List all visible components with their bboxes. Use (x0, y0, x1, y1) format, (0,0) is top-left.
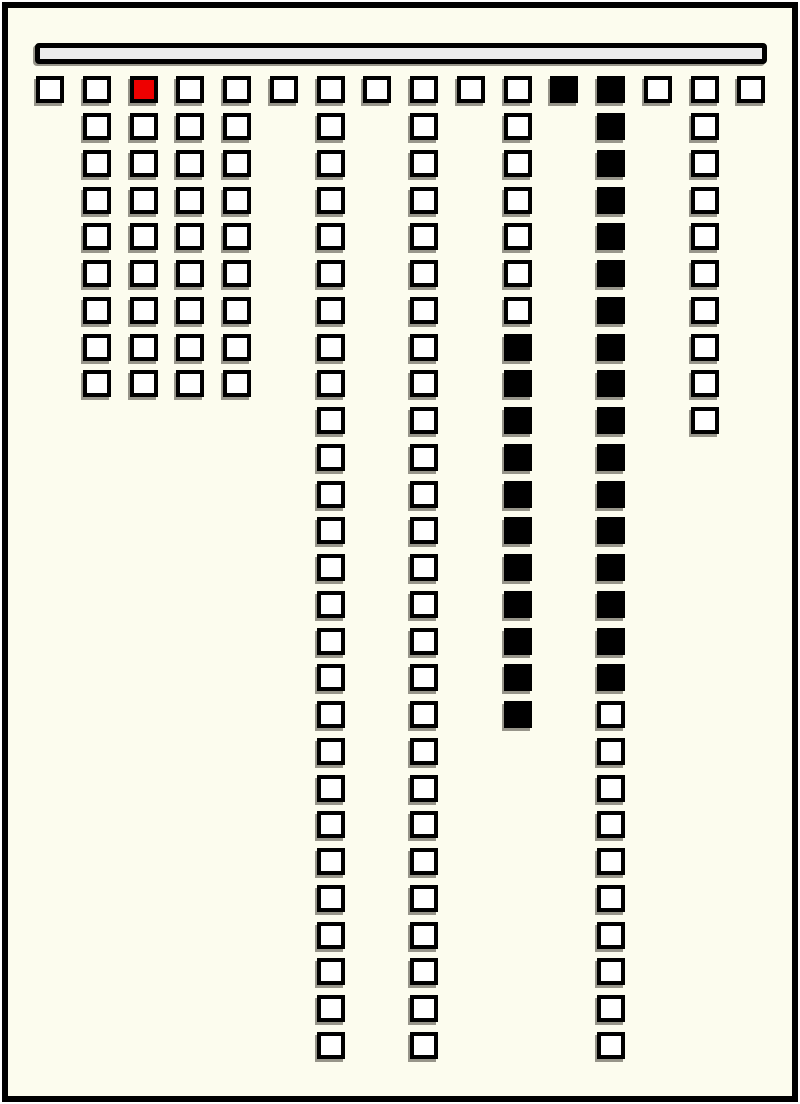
cell-empty[interactable] (317, 848, 345, 875)
cell-empty[interactable] (597, 885, 625, 912)
cell-empty[interactable] (317, 113, 345, 140)
cell-empty[interactable] (223, 334, 251, 361)
cell-empty[interactable] (410, 811, 438, 838)
cell-filled[interactable] (504, 628, 532, 655)
cell-empty[interactable] (176, 150, 204, 177)
cell-filled[interactable] (504, 407, 532, 434)
cell-empty[interactable] (410, 958, 438, 985)
cell-empty[interactable] (504, 150, 532, 177)
cell-empty[interactable] (317, 885, 345, 912)
cell-empty[interactable] (737, 76, 765, 103)
cell-empty[interactable] (410, 150, 438, 177)
cell-empty[interactable] (410, 701, 438, 728)
cell-empty[interactable] (410, 554, 438, 581)
cell-empty[interactable] (130, 113, 158, 140)
cell-empty[interactable] (410, 1032, 438, 1059)
cell-empty[interactable] (691, 223, 719, 250)
cell-empty[interactable] (223, 223, 251, 250)
cell-empty[interactable] (83, 76, 111, 103)
cell-filled[interactable] (504, 554, 532, 581)
cell-empty[interactable] (317, 811, 345, 838)
cell-empty[interactable] (130, 334, 158, 361)
cell-filled[interactable] (597, 591, 625, 618)
cell-filled[interactable] (597, 370, 625, 397)
cell-empty[interactable] (176, 297, 204, 324)
cell-empty[interactable] (410, 223, 438, 250)
cell-empty[interactable] (410, 922, 438, 949)
cell-empty[interactable] (36, 76, 64, 103)
cell-empty[interactable] (317, 481, 345, 508)
cell-empty[interactable] (130, 260, 158, 287)
cell-empty[interactable] (597, 958, 625, 985)
cell-empty[interactable] (317, 995, 345, 1022)
cell-empty[interactable] (176, 260, 204, 287)
cell-empty[interactable] (317, 444, 345, 471)
cell-empty[interactable] (83, 113, 111, 140)
cell-empty[interactable] (410, 481, 438, 508)
cell-empty[interactable] (504, 113, 532, 140)
cell-filled[interactable] (597, 150, 625, 177)
cell-filled[interactable] (597, 407, 625, 434)
cell-filled[interactable] (504, 517, 532, 544)
cell-empty[interactable] (317, 664, 345, 691)
cell-empty[interactable] (83, 150, 111, 177)
cell-empty[interactable] (317, 370, 345, 397)
cell-empty[interactable] (691, 370, 719, 397)
cell-filled[interactable] (597, 223, 625, 250)
cell-empty[interactable] (317, 260, 345, 287)
cell-empty[interactable] (597, 811, 625, 838)
cell-empty[interactable] (317, 554, 345, 581)
cell-empty[interactable] (317, 223, 345, 250)
cell-empty[interactable] (410, 113, 438, 140)
cell-empty[interactable] (317, 958, 345, 985)
cell-empty[interactable] (410, 848, 438, 875)
cell-empty[interactable] (317, 334, 345, 361)
cell-empty[interactable] (130, 370, 158, 397)
cell-filled[interactable] (597, 628, 625, 655)
cell-empty[interactable] (317, 1032, 345, 1059)
cell-empty[interactable] (223, 150, 251, 177)
cell-empty[interactable] (691, 260, 719, 287)
cell-empty[interactable] (317, 517, 345, 544)
cell-empty[interactable] (223, 297, 251, 324)
cell-empty[interactable] (410, 407, 438, 434)
cell-filled[interactable] (504, 701, 532, 728)
cell-empty[interactable] (597, 1032, 625, 1059)
cell-filled[interactable] (597, 664, 625, 691)
cell-empty[interactable] (597, 701, 625, 728)
cell-empty[interactable] (83, 187, 111, 214)
cell-empty[interactable] (223, 187, 251, 214)
cell-empty[interactable] (223, 260, 251, 287)
cell-empty[interactable] (410, 885, 438, 912)
cell-empty[interactable] (410, 775, 438, 802)
cell-filled[interactable] (597, 260, 625, 287)
cell-empty[interactable] (317, 76, 345, 103)
cell-empty[interactable] (691, 407, 719, 434)
cell-empty[interactable] (317, 150, 345, 177)
cell-filled[interactable] (504, 334, 532, 361)
cell-empty[interactable] (504, 297, 532, 324)
cell-empty[interactable] (410, 517, 438, 544)
cell-empty[interactable] (83, 370, 111, 397)
cell-empty[interactable] (410, 187, 438, 214)
cell-empty[interactable] (597, 995, 625, 1022)
cell-empty[interactable] (597, 775, 625, 802)
cell-empty[interactable] (410, 664, 438, 691)
cell-empty[interactable] (504, 187, 532, 214)
cell-empty[interactable] (317, 701, 345, 728)
app-window (0, 0, 800, 1104)
cell-empty[interactable] (644, 76, 672, 103)
cell-filled[interactable] (504, 664, 532, 691)
cell-filled[interactable] (504, 444, 532, 471)
cell-empty[interactable] (270, 76, 298, 103)
cell-empty[interactable] (83, 223, 111, 250)
cell-filled[interactable] (597, 444, 625, 471)
cell-empty[interactable] (317, 591, 345, 618)
cell-empty[interactable] (457, 76, 485, 103)
cell-empty[interactable] (317, 775, 345, 802)
cell-empty[interactable] (410, 738, 438, 765)
cell-empty[interactable] (691, 76, 719, 103)
cell-empty[interactable] (691, 187, 719, 214)
cell-empty[interactable] (317, 922, 345, 949)
cell-empty[interactable] (597, 848, 625, 875)
cell-empty[interactable] (691, 334, 719, 361)
cell-filled[interactable] (504, 370, 532, 397)
cell-empty[interactable] (504, 76, 532, 103)
cell-empty[interactable] (83, 297, 111, 324)
cell-empty[interactable] (410, 628, 438, 655)
cell-empty[interactable] (410, 444, 438, 471)
cell-empty[interactable] (317, 297, 345, 324)
cell-filled[interactable] (597, 187, 625, 214)
cell-empty[interactable] (176, 76, 204, 103)
cell-empty[interactable] (363, 76, 391, 103)
cell-empty[interactable] (317, 187, 345, 214)
cell-empty[interactable] (130, 187, 158, 214)
cell-empty[interactable] (223, 76, 251, 103)
cell-empty[interactable] (410, 995, 438, 1022)
cell-red[interactable] (130, 76, 158, 103)
cell-empty[interactable] (691, 113, 719, 140)
cell-filled[interactable] (597, 481, 625, 508)
cell-empty[interactable] (597, 922, 625, 949)
cell-empty[interactable] (410, 76, 438, 103)
cell-empty[interactable] (410, 334, 438, 361)
cell-empty[interactable] (410, 260, 438, 287)
cell-empty[interactable] (130, 150, 158, 177)
cell-empty[interactable] (317, 407, 345, 434)
cell-filled[interactable] (597, 517, 625, 544)
cell-filled[interactable] (597, 113, 625, 140)
cell-empty[interactable] (410, 591, 438, 618)
cell-empty[interactable] (410, 297, 438, 324)
cell-empty[interactable] (317, 628, 345, 655)
cell-empty[interactable] (176, 187, 204, 214)
cell-empty[interactable] (83, 334, 111, 361)
cell-empty[interactable] (130, 223, 158, 250)
cell-filled[interactable] (550, 76, 578, 103)
cell-empty[interactable] (176, 370, 204, 397)
cell-empty[interactable] (130, 297, 158, 324)
cell-empty[interactable] (691, 297, 719, 324)
cell-filled[interactable] (597, 76, 625, 103)
cell-empty[interactable] (83, 260, 111, 287)
cell-filled[interactable] (504, 591, 532, 618)
cell-filled[interactable] (597, 297, 625, 324)
cell-empty[interactable] (223, 370, 251, 397)
cell-empty[interactable] (597, 738, 625, 765)
cell-empty[interactable] (176, 113, 204, 140)
cell-empty[interactable] (691, 150, 719, 177)
cell-empty[interactable] (176, 223, 204, 250)
cell-filled[interactable] (597, 334, 625, 361)
cell-empty[interactable] (176, 334, 204, 361)
cell-filled[interactable] (504, 481, 532, 508)
cell-empty[interactable] (317, 738, 345, 765)
cell-empty[interactable] (504, 223, 532, 250)
cell-empty[interactable] (504, 260, 532, 287)
cell-filled[interactable] (597, 554, 625, 581)
cell-empty[interactable] (223, 113, 251, 140)
board (0, 0, 800, 1104)
cell-empty[interactable] (410, 370, 438, 397)
